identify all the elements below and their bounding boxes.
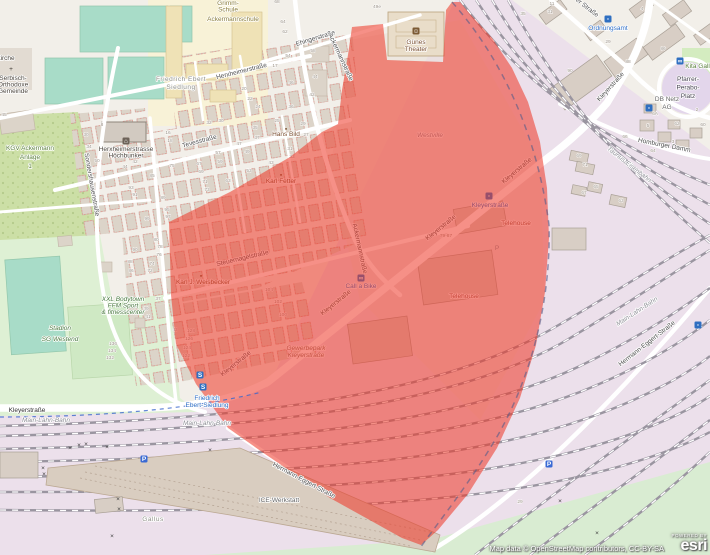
house-number: 44 — [312, 74, 318, 80]
svg-text:×: × — [42, 471, 46, 478]
rail-crossing-icon: × — [595, 530, 599, 537]
svg-text:P: P — [547, 461, 552, 468]
house-number: 62 — [674, 121, 680, 127]
label-gallus: Gallus — [142, 516, 164, 523]
house-number: 73 — [204, 187, 210, 193]
house-number: 71 — [582, 162, 588, 168]
rail-crossing-icon: × — [68, 445, 72, 452]
rail-crossing-icon: × — [117, 506, 121, 513]
house-number: 17 — [272, 63, 278, 69]
house-number: 44 — [122, 164, 128, 170]
house-number: 49e — [373, 4, 381, 10]
sports-pitch-1 — [80, 6, 168, 52]
esri-logo: POWERED BY esri — [671, 534, 707, 555]
house-number: 24 — [255, 104, 261, 110]
house-number: 57 — [215, 150, 221, 156]
house-number: 35 — [520, 11, 526, 17]
rail-crossing-icon: × — [558, 498, 562, 505]
house-number: 30 — [218, 118, 224, 124]
house-number: 18 — [167, 138, 173, 144]
house-number: 49 — [244, 149, 250, 155]
house-number: 136 — [109, 341, 117, 347]
svg-text:▫: ▫ — [648, 105, 650, 112]
house-number: 93 — [128, 185, 134, 191]
house-number: 59 — [217, 159, 223, 165]
house-number: 36 — [288, 104, 294, 110]
house-number: 42 — [309, 92, 315, 98]
house-number: 85 — [149, 173, 155, 179]
svg-text:▪: ▪ — [285, 126, 287, 133]
house-number: 74 — [149, 261, 155, 267]
house-number: 86 — [128, 268, 134, 274]
svg-text:×: × — [208, 447, 212, 454]
house-number: 64 — [280, 19, 286, 25]
house-number: 30 — [83, 132, 89, 138]
house-number: 16 — [165, 130, 171, 136]
house-number: 80 — [153, 237, 159, 243]
house-number: 6A — [652, 111, 659, 117]
house-number: 65 — [593, 184, 599, 190]
house-number: 41 — [145, 314, 151, 320]
svg-text:×: × — [110, 533, 114, 540]
house-number: 20 — [241, 86, 247, 92]
label-serbisch-orthodoxe-gemeinde: Serbisch-OrthodoxeGemeinde — [0, 75, 29, 95]
rail-crossing-icon: × — [110, 533, 114, 540]
house-number: 29 — [517, 499, 523, 505]
label-gunes-theater: GünesTheater — [405, 39, 428, 53]
church-cross-icon: + — [9, 66, 13, 73]
label-grimm-schule: Grimm-Schule — [217, 0, 239, 14]
rail-crossing-icon: × — [208, 447, 212, 454]
rail-crossing-icon: × — [42, 471, 46, 478]
house-number: 60 — [700, 122, 706, 128]
house-number: 67 — [581, 190, 587, 196]
house-number: 72 — [147, 268, 153, 274]
house-number: 78 — [157, 244, 163, 250]
house-number: 50 — [94, 158, 100, 164]
house-number: 25 — [274, 118, 280, 124]
house-number: 47 — [236, 141, 242, 147]
svg-text:▫: ▫ — [697, 322, 699, 329]
svg-text:×: × — [77, 442, 81, 449]
map-attribution: Map data © OpenStreetMap contributors, C… — [490, 544, 665, 553]
svg-text:P: P — [142, 456, 147, 463]
label-ordnungsamt: Ordnungsamt — [588, 25, 628, 32]
house-number: 11 — [550, 1, 555, 7]
house-number: 31 — [287, 146, 293, 152]
house-number: 75 — [169, 163, 175, 169]
house-number: 62 — [282, 29, 288, 35]
house-number: 5 — [647, 123, 650, 129]
house-number: 31 — [547, 9, 553, 15]
label-kirche-fragment: kirche — [0, 55, 15, 62]
label-main-lahn-bahn-2: Main-Lahn-Bahn — [183, 420, 231, 427]
house-number: 42 — [132, 159, 138, 165]
label-main-lahn-bahn-1: Main-Lahn-Bahn — [22, 417, 70, 424]
house-number: 32 — [206, 120, 212, 126]
rail-crossing-icon: × — [77, 442, 81, 449]
tram-stop-perabo-icon: ▫ — [646, 105, 653, 112]
sbahn-icon-2: S — [200, 384, 207, 391]
svg-text:×: × — [595, 530, 599, 537]
svg-text:×: × — [68, 445, 72, 452]
house-number: 89 — [160, 195, 166, 201]
svg-text:S: S — [201, 384, 206, 391]
label-kleyerstrasse-bottom: Kleyerstraße — [9, 407, 46, 414]
parking-icon-yard: P — [141, 456, 148, 463]
house-number: 88 — [127, 259, 133, 265]
map-canvas[interactable]: AckermannstraßeSteuernagelstraßeKarl Fet… — [0, 0, 710, 555]
svg-text:×: × — [105, 444, 109, 451]
house-number: 22 — [247, 96, 253, 102]
rail-crossing-icon: × — [105, 444, 109, 451]
house-number: 54 — [285, 53, 291, 59]
house-number: 90 — [567, 68, 573, 74]
label-ackermannschule: Ackermannschule — [207, 16, 259, 23]
svg-text:×: × — [84, 441, 88, 448]
house-number: 35 — [252, 125, 258, 131]
sports-pitch-2 — [45, 58, 103, 104]
house-number: 27 — [303, 132, 309, 138]
house-number: 66 — [622, 134, 628, 140]
svg-text:×: × — [116, 496, 120, 503]
svg-text:▫: ▫ — [607, 16, 609, 23]
house-number: 37 — [155, 296, 161, 302]
house-number: 69 — [198, 169, 204, 175]
svg-text:S: S — [198, 372, 203, 379]
house-number: 67 — [196, 161, 202, 167]
memorial-hans-bild-icon: ▪ — [285, 126, 287, 133]
house-number: 37 — [254, 135, 260, 141]
house-number: 34 — [86, 144, 92, 150]
svg-text:⌂: ⌂ — [124, 138, 128, 145]
theater-masks-icon: ☺ — [413, 28, 420, 35]
house-number: 29 — [300, 121, 306, 127]
bike-rental-icon-kita: ∞ — [677, 58, 684, 65]
house-number: 8 — [101, 122, 104, 128]
house-number: 63 — [225, 178, 231, 184]
rail-crossing-icon: × — [84, 441, 88, 448]
house-number: 68 — [274, 0, 280, 5]
label-ice-werkstatt: ICE-Werkstatt — [259, 497, 300, 504]
house-number: 69 — [576, 153, 582, 159]
house-number: 90 — [132, 247, 138, 253]
svg-text:☺: ☺ — [413, 28, 420, 35]
house-number: 53 — [246, 168, 252, 174]
tram-stop-ordnungsamt-icon: ▫ — [605, 16, 612, 23]
house-number: 76 — [156, 252, 162, 258]
house-number: 132 — [106, 355, 114, 361]
map-svg: AckermannstraßeSteuernagelstraßeKarl Fet… — [0, 0, 710, 555]
house-number: 95 — [164, 207, 170, 213]
parking-icon-right: P — [546, 461, 553, 468]
house-number: 29 — [605, 39, 611, 45]
rail-crossing-icon: × — [116, 496, 120, 503]
svg-text:×: × — [558, 498, 562, 505]
house-number: 63 — [618, 198, 624, 204]
house-number: 2 — [696, 107, 699, 113]
svg-text:×: × — [117, 506, 121, 513]
house-number: 4 — [641, 6, 644, 12]
transit-stop-icon-right: ▫ — [695, 322, 702, 329]
label-kita: Kita Gallus — [685, 63, 710, 70]
house-number: 46 — [288, 80, 294, 86]
esri-brand-text: esri — [671, 538, 707, 554]
house-number: 134 — [108, 348, 116, 354]
house-number: 58 — [310, 48, 316, 54]
house-number: 86 — [660, 46, 666, 52]
house-number: 99 — [144, 216, 150, 222]
house-number: 88 — [625, 59, 631, 65]
sbahn-icon-1: S — [197, 372, 204, 379]
house-number: 45 — [1, 112, 7, 118]
house-number: 91 — [132, 192, 138, 198]
svg-text:∞: ∞ — [678, 58, 683, 65]
house-number: 64 — [650, 148, 656, 154]
bunker-icon: ⌂ — [123, 138, 130, 145]
house-number: 71 — [202, 179, 208, 185]
house-number: 43 — [268, 160, 274, 166]
svg-text:+: + — [9, 66, 13, 73]
house-number: 97 — [165, 214, 171, 220]
